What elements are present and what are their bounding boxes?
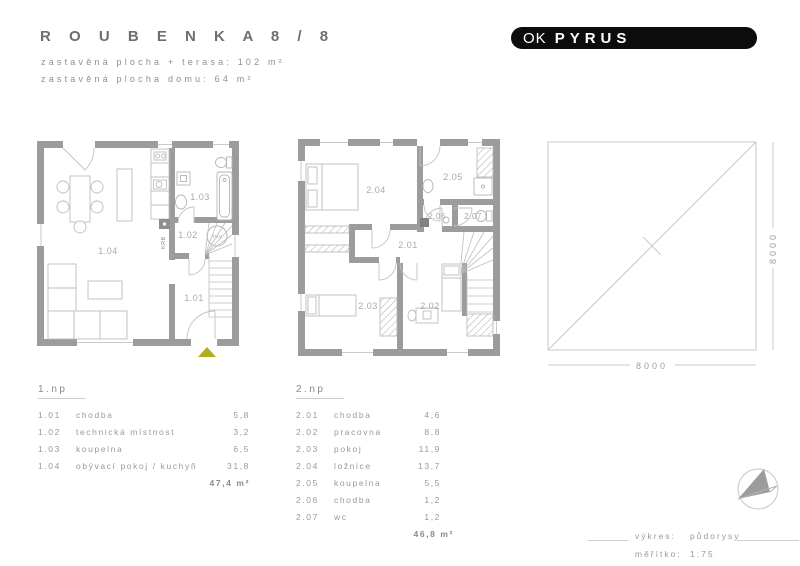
room-name: koupelna bbox=[334, 475, 410, 492]
room-name: chodba bbox=[334, 492, 410, 509]
room-area: 13,7 bbox=[410, 458, 454, 475]
legend-1np-total: 47,4 m² bbox=[38, 475, 250, 492]
room-label-203: 2.03 bbox=[358, 301, 378, 311]
plan2-door-gaps bbox=[372, 199, 442, 263]
room-number: 1.04 bbox=[38, 458, 76, 475]
sofa bbox=[48, 264, 127, 339]
room-area: 6,5 bbox=[206, 441, 250, 458]
room-label-204: 2.04 bbox=[366, 185, 386, 195]
legend-row: 2.03 pokoj 11,9 bbox=[296, 441, 454, 458]
room-label-102: 1.02 bbox=[178, 230, 198, 240]
room-name: chodba bbox=[76, 407, 206, 424]
drawing-type-value: půdorysy bbox=[690, 527, 741, 545]
title-block: výkres: půdorysy měřítko: 1:75 bbox=[635, 527, 800, 563]
room-number: 2.01 bbox=[296, 407, 334, 424]
room-label-205: 2.05 bbox=[443, 172, 463, 182]
room-area: 8,8 bbox=[410, 424, 454, 441]
floor-plan-1np-drawing: KRB TUV bbox=[37, 140, 239, 360]
room-label-201: 2.01 bbox=[398, 240, 418, 250]
legend-2np-total: 46,8 m² bbox=[296, 526, 454, 543]
brand-logo: OK PYRUS bbox=[511, 27, 757, 49]
legend-row: 1.01 chodba 5,8 bbox=[38, 407, 250, 424]
legend-1np-rule bbox=[38, 398, 86, 399]
entrance-marker bbox=[198, 347, 216, 357]
legend-1np: 1.np 1.01 chodba 5,8 1.02 technická míst… bbox=[38, 384, 250, 492]
legend-2np-header: 2.np bbox=[296, 384, 454, 395]
room-label-101: 1.01 bbox=[184, 293, 204, 303]
room-label-206: 2.06 bbox=[428, 212, 446, 221]
krb-label: KRB bbox=[161, 236, 167, 249]
legend-row: 2.01 chodba 4,6 bbox=[296, 407, 454, 424]
legend-row: 2.06 chodba 1,2 bbox=[296, 492, 454, 509]
room-name: chodba bbox=[334, 407, 410, 424]
room-name: technická místnost bbox=[76, 424, 206, 441]
logo-ok-text: OK bbox=[523, 30, 547, 47]
room-number: 2.07 bbox=[296, 509, 334, 526]
plot-width-dimension: 8000 bbox=[636, 361, 668, 371]
scale-label: měřítko: bbox=[635, 545, 690, 563]
room-number: 1.02 bbox=[38, 424, 76, 441]
legend-row: 2.02 pracovna 8,8 bbox=[296, 424, 454, 441]
plot-square bbox=[548, 142, 756, 350]
room-number: 2.03 bbox=[296, 441, 334, 458]
room-area: 1,2 bbox=[410, 492, 454, 509]
legend-1np-header: 1.np bbox=[38, 384, 250, 395]
room-number: 2.02 bbox=[296, 424, 334, 441]
room-name: pracovna bbox=[334, 424, 410, 441]
titleblock-line-left bbox=[588, 540, 628, 541]
built-area-house-line: zastavěná plocha domu: 64 m² bbox=[41, 74, 254, 84]
drawing-sheet: R O U B E N K A 8 / 8 zastavěná plocha +… bbox=[0, 0, 800, 566]
plan1-hall-door-gap bbox=[189, 253, 205, 259]
room-number: 2.05 bbox=[296, 475, 334, 492]
kitchen-island bbox=[117, 169, 132, 221]
kitchen-counter bbox=[151, 149, 169, 219]
room-name: koupelna bbox=[76, 441, 206, 458]
legend-row: 1.03 koupelna 6,5 bbox=[38, 441, 250, 458]
room-label-103: 1.03 bbox=[190, 192, 210, 202]
room-area: 5,5 bbox=[410, 475, 454, 492]
room-number: 1.03 bbox=[38, 441, 76, 458]
room-label-202: 2.02 bbox=[420, 301, 440, 311]
room-203-bed bbox=[306, 295, 356, 316]
logo-pyrus-text: PYRUS bbox=[555, 30, 632, 47]
drawing-type-label: výkres: bbox=[635, 527, 690, 545]
legend-row: 1.02 technická místnost 3,2 bbox=[38, 424, 250, 441]
plan1-bath-door-gap bbox=[178, 217, 194, 223]
room-area: 31,8 bbox=[206, 458, 250, 475]
fireplace bbox=[159, 219, 170, 229]
page-title: R O U B E N K A 8 / 8 bbox=[40, 28, 335, 45]
legend-row: 2.04 ložnice 13,7 bbox=[296, 458, 454, 475]
scale-value: 1:75 bbox=[690, 545, 715, 563]
room-area: 11,9 bbox=[410, 441, 454, 458]
plot-height-dimension: 8000 bbox=[768, 232, 778, 264]
room-area: 4,6 bbox=[410, 407, 454, 424]
room-number: 1.01 bbox=[38, 407, 76, 424]
coffee-table bbox=[88, 281, 122, 299]
room-area: 5,8 bbox=[206, 407, 250, 424]
room-number: 2.06 bbox=[296, 492, 334, 509]
dimension-lines bbox=[548, 142, 773, 365]
room-name: wc bbox=[334, 509, 410, 526]
room-label-207: 2.07 bbox=[464, 212, 482, 221]
room-name: ložnice bbox=[334, 458, 410, 475]
room-202-furniture bbox=[408, 264, 461, 323]
room-name: pokoj bbox=[334, 441, 410, 458]
legend-2np: 2.np 2.01 chodba 4,6 2.02 pracovna 8,8 2… bbox=[296, 384, 454, 543]
room-number: 2.04 bbox=[296, 458, 334, 475]
north-arrow-icon bbox=[731, 462, 785, 516]
legend-2np-rule bbox=[296, 398, 344, 399]
bedroom-204-bed bbox=[306, 164, 358, 210]
legend-row: 2.07 wc 1,2 bbox=[296, 509, 454, 526]
room-area: 3,2 bbox=[206, 424, 250, 441]
room-name: obývací pokoj / kuchyň bbox=[76, 458, 206, 475]
room-area: 1,2 bbox=[410, 509, 454, 526]
built-area-terrace-line: zastavěná plocha + terasa: 102 m² bbox=[41, 57, 285, 67]
room-label-104: 1.04 bbox=[98, 246, 118, 256]
floor-plan-2np-drawing: 2.01 2.02 2.03 2.04 2.05 2.06 2.07 bbox=[296, 138, 502, 360]
dining-set bbox=[57, 176, 103, 233]
plot-outline-drawing: 8000 8000 bbox=[545, 140, 795, 375]
legend-row: 1.04 obývací pokoj / kuchyň 31,8 bbox=[38, 458, 250, 475]
legend-row: 2.05 koupelna 5,5 bbox=[296, 475, 454, 492]
